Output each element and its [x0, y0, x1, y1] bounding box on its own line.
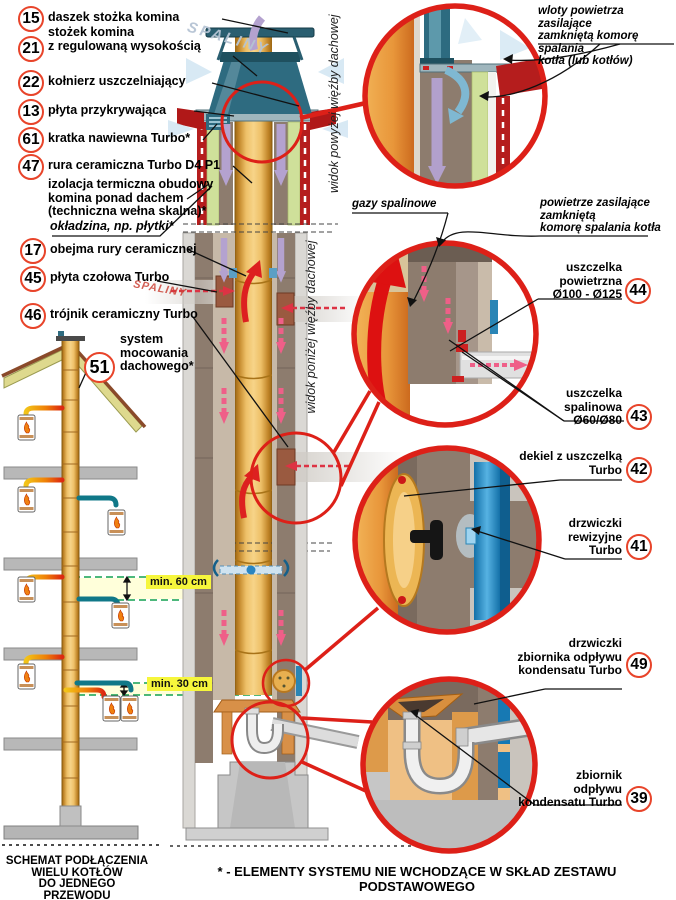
callout-13-label: płyta przykrywająca — [48, 104, 166, 118]
callout-44-label: uszczelka powietrzna Ø100 - Ø125 — [553, 261, 622, 302]
detail-condensate-trap — [362, 676, 538, 852]
callout-46-number: 46 — [20, 303, 46, 329]
detail-tee-seals — [354, 240, 538, 428]
callout-41-label: drzwiczki rewizyjne Turbo — [568, 517, 622, 558]
chimney-system-diagram: 15 daszek stożka komina 21 stożek komina… — [0, 0, 676, 900]
callout-41-number: 41 — [626, 534, 652, 560]
callout-21-number: 21 — [18, 36, 44, 62]
dimension-min-60cm: min. 60 cm — [146, 575, 211, 589]
callout-15-label: daszek stożka komina — [48, 11, 179, 25]
callout-44-number: 44 — [625, 278, 651, 304]
callout-43-label: uszczelka spalinowa Ø60/Ø80 — [564, 387, 622, 428]
callout-42-number: 42 — [626, 457, 652, 483]
callout-47-label: rura ceramiczna Turbo D4 P1 — [48, 159, 220, 173]
callout-13-number: 13 — [18, 99, 44, 125]
view-label-above-roof: widok powyżej więźby dachowej — [327, 23, 341, 193]
view-label-below-roof: widok poniżej więźby dachowej — [304, 227, 318, 427]
callout-49-label: drzwiczki zbiornika odpływu kondensatu T… — [517, 637, 622, 678]
callout-61-label: kratka nawiewna Turbo* — [48, 132, 190, 146]
callout-42-label: dekiel z uszczelką Turbo — [519, 450, 622, 477]
callout-47-number: 47 — [18, 154, 44, 180]
callout-51-label: system mocowania dachowego* — [120, 333, 194, 374]
callout-17-number: 17 — [20, 238, 46, 264]
callout-45-number: 45 — [20, 266, 46, 292]
note-flue-gases: gazy spalinowe — [352, 198, 436, 211]
callout-46-label: trójnik ceramiczny Turbo — [50, 308, 198, 322]
note-insulation: izolacja termiczna obudowy komina ponad … — [48, 178, 213, 219]
callout-39-number: 39 — [626, 786, 652, 812]
asterisk-note: * - ELEMENTY SYSTEMU NIE WCHODZĄCE W SKŁ… — [158, 864, 676, 894]
callout-51-number: 51 — [84, 352, 115, 383]
callout-22-label: kołnierz uszczelniający — [48, 75, 186, 89]
callout-21-label: stożek komina z regulowaną wysokością — [48, 26, 201, 53]
detail-roof-penetration — [362, 3, 548, 190]
note-cladding: okładzina, np. płytki* — [50, 220, 174, 234]
callout-17-label: obejma rury ceramicznej — [50, 243, 197, 257]
callout-15-number: 15 — [18, 6, 44, 32]
callout-61-number: 61 — [18, 127, 44, 153]
callout-22-number: 22 — [18, 70, 44, 96]
note-air-inlets: wloty powietrza zasilające zamkniętą kom… — [538, 5, 676, 68]
callout-49-number: 49 — [626, 652, 652, 678]
schematic-caption: SCHEMAT PODŁĄCZENIA WIELU KOTŁÓW DO JEDN… — [2, 856, 152, 900]
note-supply-air: powietrze zasilające zamkniętą komorę sp… — [540, 197, 661, 235]
dimension-min-30cm: min. 30 cm — [147, 677, 212, 691]
callout-39-label: zbiornik odpływu kondensatu Turbo — [518, 769, 622, 810]
callout-43-number: 43 — [626, 404, 652, 430]
detail-cap-revision-door — [355, 448, 540, 634]
